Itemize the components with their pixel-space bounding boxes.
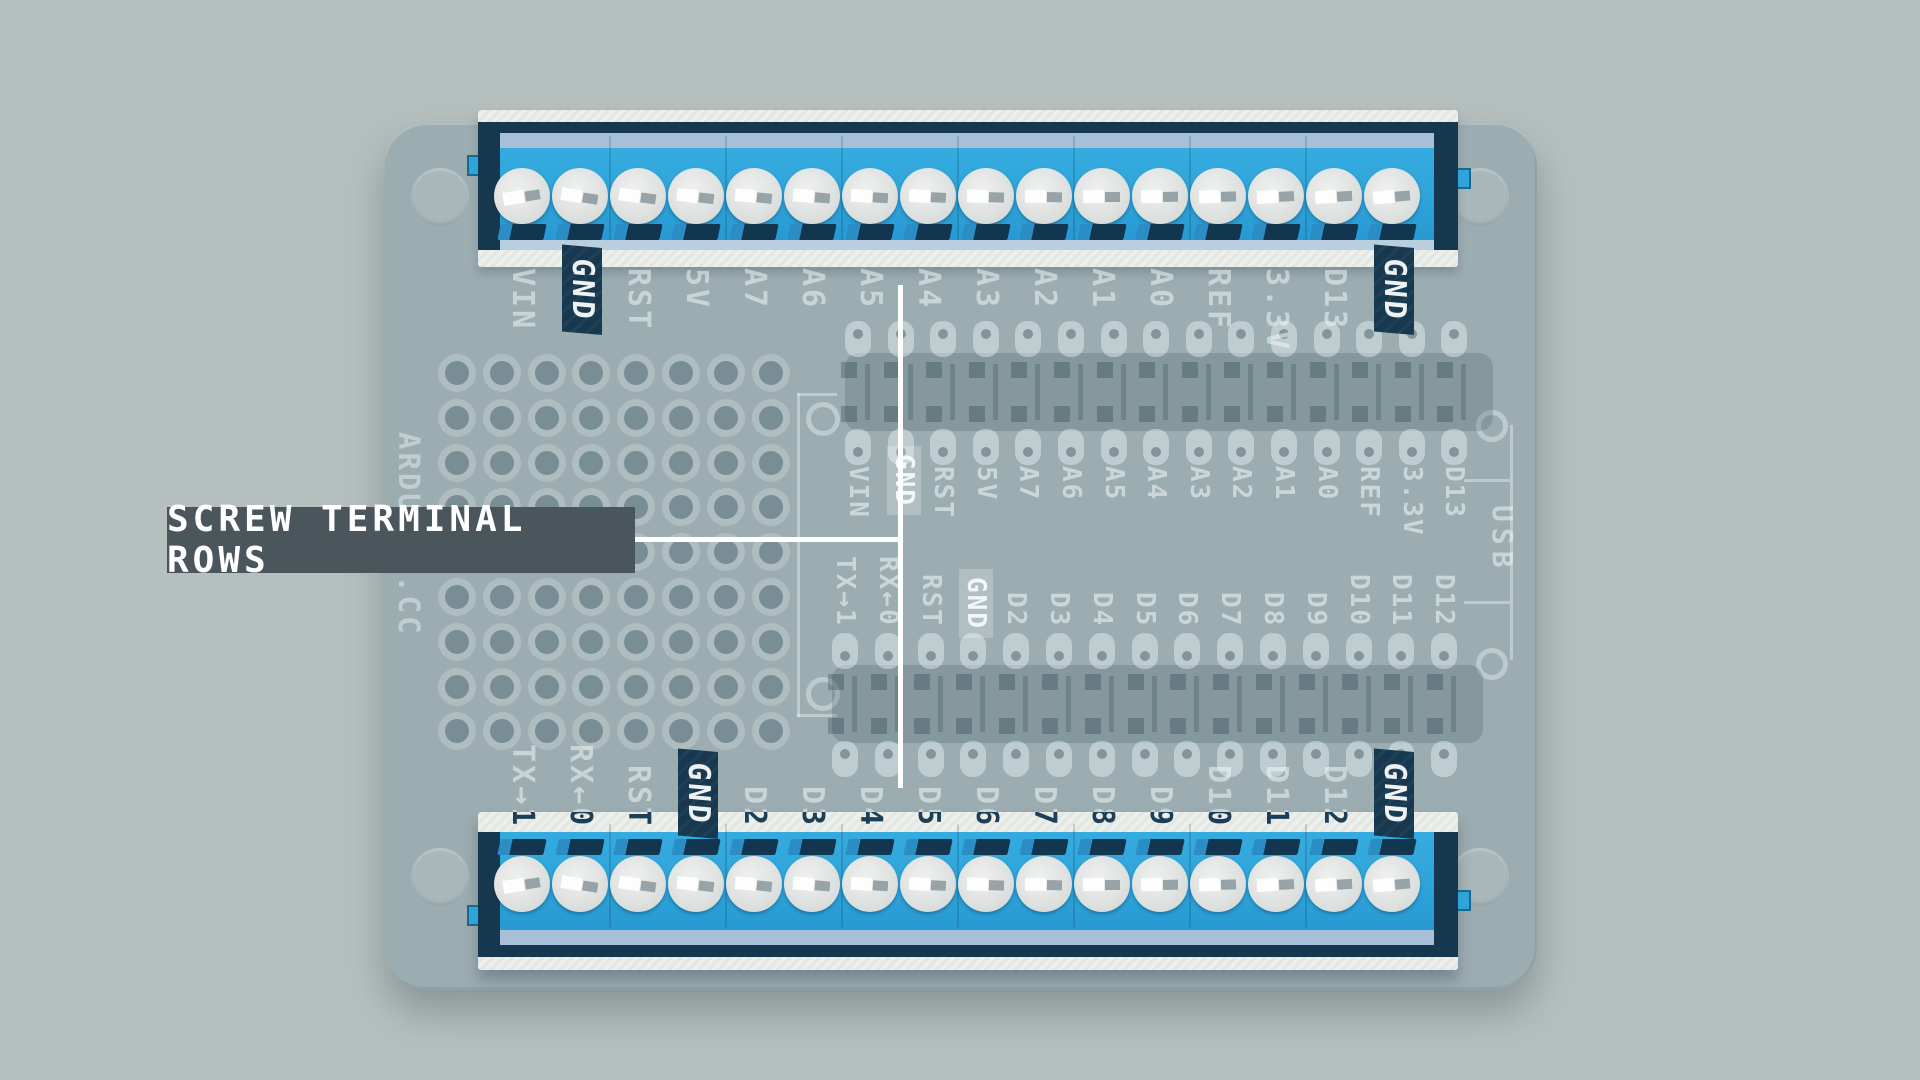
screw-slot-shadow: [1221, 191, 1236, 202]
header-pad: [1089, 633, 1115, 669]
screw-slot-highlight: [1199, 190, 1220, 204]
screw-slot-shadow: [698, 192, 714, 204]
proto-hole: [662, 578, 700, 616]
header-pin: [1182, 406, 1198, 422]
header-pad-hole: [1364, 447, 1374, 457]
wire-slot: [613, 839, 662, 855]
header-pin: [1366, 676, 1371, 732]
header-pad-hole: [853, 329, 863, 339]
header-pad: [1441, 321, 1467, 357]
header-pin: [1054, 362, 1070, 378]
header-pad: [1228, 429, 1254, 465]
header-pin: [1121, 364, 1126, 420]
header-pin: [1128, 718, 1144, 734]
screw-slot-highlight: [1141, 190, 1162, 203]
terminal-pin-label-dark: RX←0: [563, 812, 597, 828]
header-pin-label: D5: [1130, 592, 1160, 627]
header-pin: [1256, 674, 1272, 690]
header-pin: [1334, 364, 1339, 420]
header-pad-hole: [1109, 447, 1119, 457]
header-pad-hole: [1311, 749, 1321, 759]
header-pin: [1427, 718, 1443, 734]
screw-slot-shadow: [1163, 192, 1178, 202]
screw-slot-shadow: [640, 192, 656, 204]
proto-hole: [572, 444, 610, 482]
header-pad-hole: [968, 749, 978, 759]
screw-slot-highlight: [909, 189, 931, 203]
terminal-pin-label-dark: TX→1: [505, 812, 539, 828]
proto-hole: [707, 712, 745, 750]
mounting-hole: [411, 848, 469, 906]
header-pad-hole: [1066, 329, 1076, 339]
proto-hole: [528, 444, 566, 482]
screw-slot-shadow: [698, 880, 714, 892]
header-pin: [1280, 676, 1285, 732]
header-pin: [950, 364, 955, 420]
terminal-pin-label-dark: D8: [1085, 812, 1119, 828]
proto-hole: [438, 623, 476, 661]
header-pad-hole: [926, 651, 936, 661]
wire-slot: [497, 224, 546, 240]
proto-hole: [662, 354, 700, 392]
header-pad-hole: [1311, 651, 1321, 661]
screw-slot-shadow: [582, 881, 598, 893]
screw-slot-highlight: [560, 187, 583, 203]
header-pin: [1109, 676, 1114, 732]
header-pad: [1003, 741, 1029, 777]
header-pad-hole: [1066, 447, 1076, 457]
header-pad: [1003, 633, 1029, 669]
header-pin: [1427, 674, 1443, 690]
header-pad: [1015, 321, 1041, 357]
screw-slot-shadow: [756, 192, 772, 204]
header-pad-hole: [1109, 329, 1119, 339]
header-pin: [1011, 406, 1027, 422]
proto-hole: [438, 444, 476, 482]
proto-hole: [572, 623, 610, 661]
header-pin: [1342, 718, 1358, 734]
header-pad: [1217, 633, 1243, 669]
terminal-pin-label: A4: [911, 268, 945, 310]
terminal-pin-label-dark: D3: [795, 812, 829, 828]
wire-slot: [671, 224, 720, 240]
header-pad-hole: [1268, 749, 1278, 759]
header-pad: [845, 429, 871, 465]
terminal-pin-label: REF: [1201, 268, 1235, 331]
header-pin-label: 3.3V: [1397, 466, 1427, 537]
header-pin-label: A1: [1269, 466, 1299, 501]
header-pin-label: A4: [1141, 466, 1171, 501]
header-pin: [865, 364, 870, 420]
header-pin: [1248, 364, 1253, 420]
header-pin-label: D2: [1001, 592, 1031, 627]
proto-hole: [483, 399, 521, 437]
header-pad-hole: [1182, 749, 1192, 759]
wire-slot: [787, 224, 836, 240]
header-pad-hole: [1279, 447, 1289, 457]
header-pin: [1267, 406, 1283, 422]
header-pad: [1271, 429, 1297, 465]
header-pin: [1419, 364, 1424, 420]
header-pin: [938, 676, 943, 732]
screw-slot-shadow: [931, 880, 947, 891]
terminal-pin-label: A3: [969, 268, 1003, 310]
proto-hole: [483, 668, 521, 706]
header-pad-hole: [1396, 651, 1406, 661]
header-pad: [918, 741, 944, 777]
header-pad: [1101, 429, 1127, 465]
header-pin: [1170, 718, 1186, 734]
wire-slot: [1251, 224, 1300, 240]
terminal-label-dark-band-top: VINRST5VA7A6A5A4A3A2A1A0REF3.3VD13: [478, 250, 1458, 268]
header-pin: [1352, 406, 1368, 422]
header-pad-hole: [981, 447, 991, 457]
proto-hole: [572, 399, 610, 437]
header-pin: [1267, 362, 1283, 378]
wire-slot: [1309, 839, 1358, 855]
header-pin: [1139, 362, 1155, 378]
header-pad: [973, 321, 999, 357]
proto-hole: [528, 354, 566, 392]
header-pad: [832, 741, 858, 777]
wire-slot: [1019, 839, 1068, 855]
header-pin-label: REF: [1354, 466, 1384, 519]
header-pin: [969, 362, 985, 378]
screw-slot-shadow: [524, 189, 540, 201]
terminal-pin-label-dark: D12: [1317, 812, 1351, 828]
header-pin-label: D3: [1044, 592, 1074, 627]
header-pin: [1213, 674, 1229, 690]
header-pin: [1182, 362, 1198, 378]
screw-slot-highlight: [676, 188, 698, 203]
header-pad: [1431, 741, 1457, 777]
header-pin: [1437, 406, 1453, 422]
screw-slot-highlight: [618, 875, 641, 891]
header-pad: [1356, 429, 1382, 465]
header-pad-hole: [1322, 447, 1332, 457]
proto-hole: [617, 399, 655, 437]
wire-slot: [1251, 839, 1300, 855]
header-pad-hole: [1182, 651, 1192, 661]
annotation-pointer-vertical: [898, 285, 903, 788]
header-pin-label: D11: [1386, 574, 1416, 627]
header-pad: [1132, 633, 1158, 669]
screw-slot-shadow: [1047, 880, 1062, 890]
wire-slot: [903, 224, 952, 240]
wire-slot: [961, 224, 1010, 240]
header-pad: [1101, 321, 1127, 357]
header-pin: [969, 406, 985, 422]
proto-hole: [483, 354, 521, 392]
terminal-pin-label: RST: [621, 268, 655, 331]
terminal-screw: [1074, 856, 1130, 912]
wire-slot: [671, 839, 720, 855]
screw-slot-shadow: [873, 880, 889, 891]
header-pad: [1089, 741, 1115, 777]
header-pad: [1314, 429, 1340, 465]
header-pin: [1291, 364, 1296, 420]
proto-hole: [483, 444, 521, 482]
wire-slot: [1193, 224, 1242, 240]
screw-slot-shadow: [1337, 879, 1353, 890]
header-pin: [1152, 676, 1157, 732]
terminal-pin-label: 5V: [679, 268, 713, 310]
screw-slot-highlight: [1025, 878, 1046, 891]
screw-slot-highlight: [502, 190, 525, 206]
header-pad-hole: [883, 749, 893, 759]
header-pin-label: 5V: [971, 466, 1001, 501]
header-pad: [1058, 321, 1084, 357]
header-pad-hole: [1236, 329, 1246, 339]
header-pad: [1143, 429, 1169, 465]
proto-hole: [752, 668, 790, 706]
wire-slot: [729, 839, 778, 855]
header-pad: [1174, 633, 1200, 669]
screw-slot-highlight: [1083, 878, 1104, 891]
screw-slot-highlight: [1083, 190, 1104, 203]
mounting-hole: [411, 168, 469, 226]
terminal-pin-label-dark: D2: [737, 812, 771, 828]
header-pin-label: A5: [1099, 466, 1129, 501]
screw-slot-shadow: [524, 877, 540, 889]
header-pad: [1431, 633, 1457, 669]
screw-slot-highlight: [1141, 878, 1162, 891]
header-pin: [1085, 674, 1101, 690]
header-pad-hole: [1023, 329, 1033, 339]
header-pad: [930, 429, 956, 465]
screw-slot-highlight: [734, 876, 756, 891]
header-pin-label: A6: [1056, 466, 1086, 501]
header-pad-hole: [1097, 651, 1107, 661]
header-pin: [1352, 362, 1368, 378]
header-pin: [914, 674, 930, 690]
screw-slot-shadow: [931, 192, 947, 203]
header-pin: [1342, 674, 1358, 690]
header-pad: [930, 321, 956, 357]
header-pad: [1346, 633, 1372, 669]
screw-slot-highlight: [734, 188, 756, 203]
header-pin: [1023, 676, 1028, 732]
header-pad-hole: [1449, 329, 1459, 339]
proto-hole: [617, 623, 655, 661]
terminal-pin-label-dark: D7: [1027, 812, 1061, 828]
header-pin: [841, 362, 857, 378]
silk-pad-ring: [806, 402, 840, 436]
header-pad-hole: [1151, 447, 1161, 457]
proto-hole: [707, 578, 745, 616]
header-pin: [1224, 406, 1240, 422]
annotation-label: SCREW TERMINAL ROWS: [167, 499, 635, 581]
header-pad: [1015, 429, 1041, 465]
header-pin-label: RST: [928, 466, 958, 519]
silk-bracket-left-tick: [797, 714, 837, 717]
wire-slot: [961, 839, 1010, 855]
terminal-pin-label: A1: [1085, 268, 1119, 310]
screw-slot-shadow: [1395, 878, 1411, 889]
header-pin: [908, 364, 913, 420]
screw-slot-shadow: [1047, 192, 1062, 202]
proto-hole: [438, 399, 476, 437]
screw-slot-highlight: [1315, 878, 1337, 892]
proto-hole: [707, 623, 745, 661]
terminal-lower-edge: [500, 930, 1434, 945]
header-pad: [845, 321, 871, 357]
terminal-top-edge: [500, 133, 1434, 148]
silk-usb-tick: [1464, 601, 1510, 604]
header-pad-hole: [1140, 749, 1150, 759]
header-pad: [960, 741, 986, 777]
proto-hole: [617, 354, 655, 392]
header-pad: [875, 633, 901, 669]
proto-hole: [752, 488, 790, 526]
header-pin: [1299, 718, 1315, 734]
proto-hole: [662, 444, 700, 482]
header-pin: [1213, 718, 1229, 734]
wire-slot: [555, 839, 604, 855]
screw-slot-shadow: [1163, 880, 1178, 890]
header-pad-hole: [1449, 447, 1459, 457]
header-pin: [1066, 676, 1071, 732]
header-pin-label: A3: [1184, 466, 1214, 501]
header-pin: [1085, 718, 1101, 734]
wire-slot: [845, 224, 894, 240]
wire-slot: [729, 224, 778, 240]
terminal-lower-edge: [500, 240, 1434, 250]
screw-slot-shadow: [1105, 880, 1120, 890]
header-pad-hole: [1194, 447, 1204, 457]
terminal-pin-label-dark: D5: [911, 812, 945, 828]
screw-slot-highlight: [676, 876, 698, 891]
screw-slot-shadow: [1279, 879, 1295, 890]
header-pin: [1128, 674, 1144, 690]
terminal-pin-label-dark: D6: [969, 812, 1003, 828]
annotation-callout: SCREW TERMINAL ROWS: [167, 507, 635, 573]
wire-slot: [1135, 839, 1184, 855]
header-pin-label: RST: [916, 574, 946, 627]
screw-slot-highlight: [792, 876, 814, 891]
header-pad-hole: [926, 749, 936, 759]
header-pin: [1078, 364, 1083, 420]
terminal-pin-label-dark: D11: [1259, 812, 1293, 828]
header-pin: [1170, 674, 1186, 690]
header-pin: [828, 674, 844, 690]
header-pad-hole: [840, 651, 850, 661]
screw-terminal-diagram: ARDUINO.CC USB VINGNDRST5VA7A6A5A4A3A2A1…: [0, 0, 1920, 1080]
wire-slot: [903, 839, 952, 855]
screw-slot-highlight: [967, 189, 988, 203]
screw-slot-highlight: [792, 188, 814, 203]
header-pad-hole: [1268, 651, 1278, 661]
header-pin: [852, 676, 857, 732]
header-pin-label: D6: [1172, 592, 1202, 627]
wire-slot: [1019, 224, 1068, 240]
header-pad-hole: [1225, 749, 1235, 759]
annotation-pointer-horizontal: [635, 537, 901, 542]
header-pad-hole: [981, 329, 991, 339]
header-pad-hole: [1439, 651, 1449, 661]
proto-hole: [572, 668, 610, 706]
header-pin: [1310, 406, 1326, 422]
header-pin: [1384, 718, 1400, 734]
header-pin: [1451, 676, 1456, 732]
terminal-pin-label-dark: RST: [621, 812, 655, 828]
silk-bracket-left: [797, 393, 800, 717]
header-pad: [1186, 429, 1212, 465]
header-pad: [1132, 741, 1158, 777]
header-pin: [993, 364, 998, 420]
header-pin: [1256, 718, 1272, 734]
header-pad: [1174, 741, 1200, 777]
proto-hole: [662, 399, 700, 437]
proto-hole: [528, 399, 566, 437]
header-pin: [926, 406, 942, 422]
header-pad-hole: [1054, 651, 1064, 661]
terminal-screw: [1074, 168, 1130, 224]
proto-hole: [707, 444, 745, 482]
wire-slot: [1367, 839, 1416, 855]
header-pad-hole: [938, 329, 948, 339]
screw-slot-highlight: [1199, 878, 1220, 892]
screw-slot-shadow: [1395, 190, 1411, 201]
proto-hole: [528, 578, 566, 616]
screw-slot-highlight: [1315, 190, 1337, 204]
silk-usb-outline: [1510, 425, 1513, 660]
header-pad: [973, 429, 999, 465]
terminal-pin-label: VIN: [505, 268, 539, 331]
proto-hole: [438, 668, 476, 706]
screw-slot-highlight: [1257, 190, 1279, 204]
screw-slot-shadow: [814, 192, 830, 203]
screw-slot-highlight: [1257, 878, 1279, 892]
header-pin: [1395, 362, 1411, 378]
header-pin: [1042, 674, 1058, 690]
screw-slot-shadow: [1279, 191, 1295, 202]
wire-slot: [1135, 224, 1184, 240]
header-pin-label: A0: [1312, 466, 1342, 501]
wire-slot: [1309, 224, 1358, 240]
screw-slot-shadow: [989, 192, 1004, 203]
header-pin-label: VIN: [843, 466, 873, 519]
terminal-pin-label: D13: [1317, 268, 1351, 331]
header-pin: [1408, 676, 1413, 732]
header-pad-hole: [853, 447, 863, 457]
terminal-pin-label: 3.3V: [1259, 268, 1293, 352]
header-pin: [1042, 718, 1058, 734]
header-pin: [999, 718, 1015, 734]
header-pad: [832, 633, 858, 669]
header-pin: [1011, 362, 1027, 378]
header-pin-label: D10: [1344, 574, 1374, 627]
header-pad: [1399, 429, 1425, 465]
proto-hole: [662, 623, 700, 661]
terminal-pin-label-dark: D4: [853, 812, 887, 828]
screw-slot-highlight: [851, 877, 873, 891]
header-pad-hole: [1407, 447, 1417, 457]
header-pad: [1046, 633, 1072, 669]
header-pad-hole: [938, 447, 948, 457]
terminal-pin-label: A7: [737, 268, 771, 310]
header-pin: [1376, 364, 1381, 420]
terminal-pin-label-dark: D9: [1143, 812, 1177, 828]
header-pad: [1303, 633, 1329, 669]
screw-slot-highlight: [1373, 878, 1395, 893]
proto-hole: [483, 578, 521, 616]
header-pad-hole: [1354, 651, 1364, 661]
wire-slot: [787, 839, 836, 855]
wire-slot: [613, 224, 662, 240]
header-pin: [926, 362, 942, 378]
header-pin: [1163, 364, 1168, 420]
